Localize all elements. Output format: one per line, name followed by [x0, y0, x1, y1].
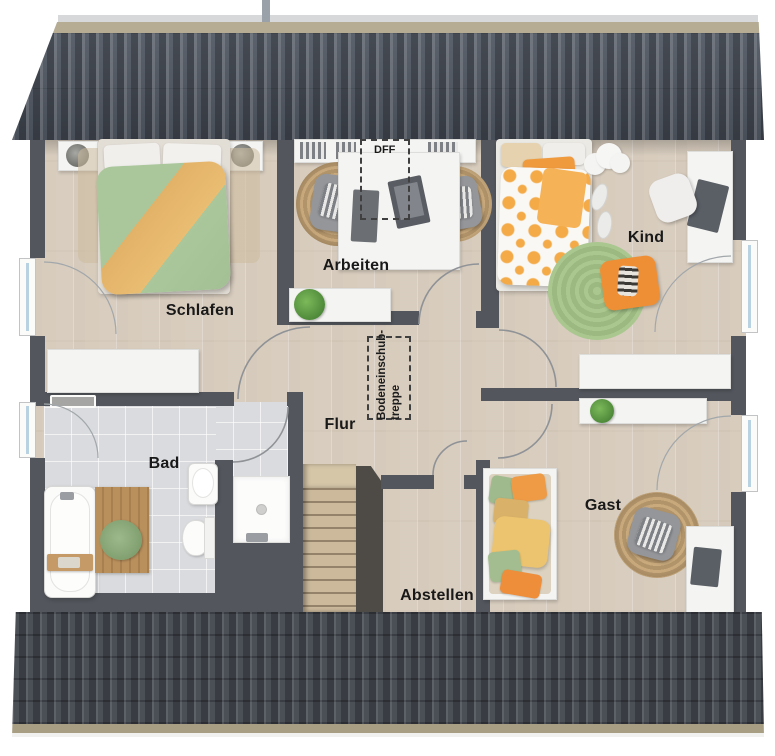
wall-junction-piece: [476, 311, 499, 328]
tiger-toy: [617, 265, 639, 296]
wall-shower-bottom-mass: [233, 541, 303, 595]
toilet-tank: [204, 517, 215, 559]
washbasin-bowl: [192, 468, 214, 498]
room-label-schlafen: Schlafen: [166, 302, 234, 320]
roof-eave-strip: [12, 724, 764, 733]
bathtub-inner: [50, 492, 90, 592]
wall-stair-side: [356, 466, 383, 612]
room-label-flur: Flur: [324, 416, 355, 434]
shower-drain: [256, 504, 267, 515]
towel-rail: [50, 395, 96, 408]
annotation-dff: DFF: [374, 144, 395, 156]
roof-top-tiles: [12, 33, 764, 140]
gast-plant: [590, 399, 614, 423]
kind-wardrobe: [579, 354, 731, 389]
wall-right-b: [731, 336, 746, 415]
roof-bottom-tiles: [12, 612, 764, 724]
window-schlafen-glass: [26, 263, 29, 331]
duvet: [96, 161, 232, 296]
attic-stair-line1: Bodeneinschub-: [375, 336, 389, 420]
attic-stair-line2: treppe: [389, 336, 403, 420]
window-bad-glass: [26, 406, 29, 454]
shower-faucet: [246, 533, 268, 542]
wall-left-a: [30, 140, 45, 258]
roof-bottom: [12, 612, 764, 737]
schlafen-sideboard: [47, 349, 199, 393]
room-label-arbeiten: Arbeiten: [323, 257, 390, 275]
cloud-part: [610, 153, 630, 173]
window-gast-glass: [748, 420, 751, 487]
cloud-shelf: [584, 143, 630, 177]
window-kind-glass: [748, 245, 751, 328]
roof-ridge-capline: [58, 15, 758, 23]
floorplan-canvas: Schlafen Arbeiten Kind Flur Bad Abstelle…: [0, 0, 775, 756]
room-label-gast: Gast: [585, 497, 621, 515]
arbeiten-plant: [294, 289, 325, 320]
kid-duvet-fold-orange: [536, 167, 587, 229]
wall-abstellen-top-a: [381, 475, 434, 489]
annotation-attic-stair: Bodeneinschub- treppe: [375, 336, 403, 420]
room-label-abstellen: Abstellen: [400, 587, 474, 605]
caddy-towel: [58, 557, 80, 568]
gast-monitor: [690, 547, 722, 588]
roof-eave-edge: [12, 733, 764, 737]
roof-top: [12, 22, 764, 140]
room-label-bad: Bad: [149, 455, 180, 473]
room-label-kind: Kind: [628, 229, 664, 247]
towel-green: [100, 520, 142, 560]
bathtub-faucet: [60, 492, 74, 500]
wall-left-c: [30, 458, 45, 612]
stair-landing: [303, 464, 356, 488]
books-1: [300, 142, 326, 159]
wall-right-a: [731, 140, 746, 240]
